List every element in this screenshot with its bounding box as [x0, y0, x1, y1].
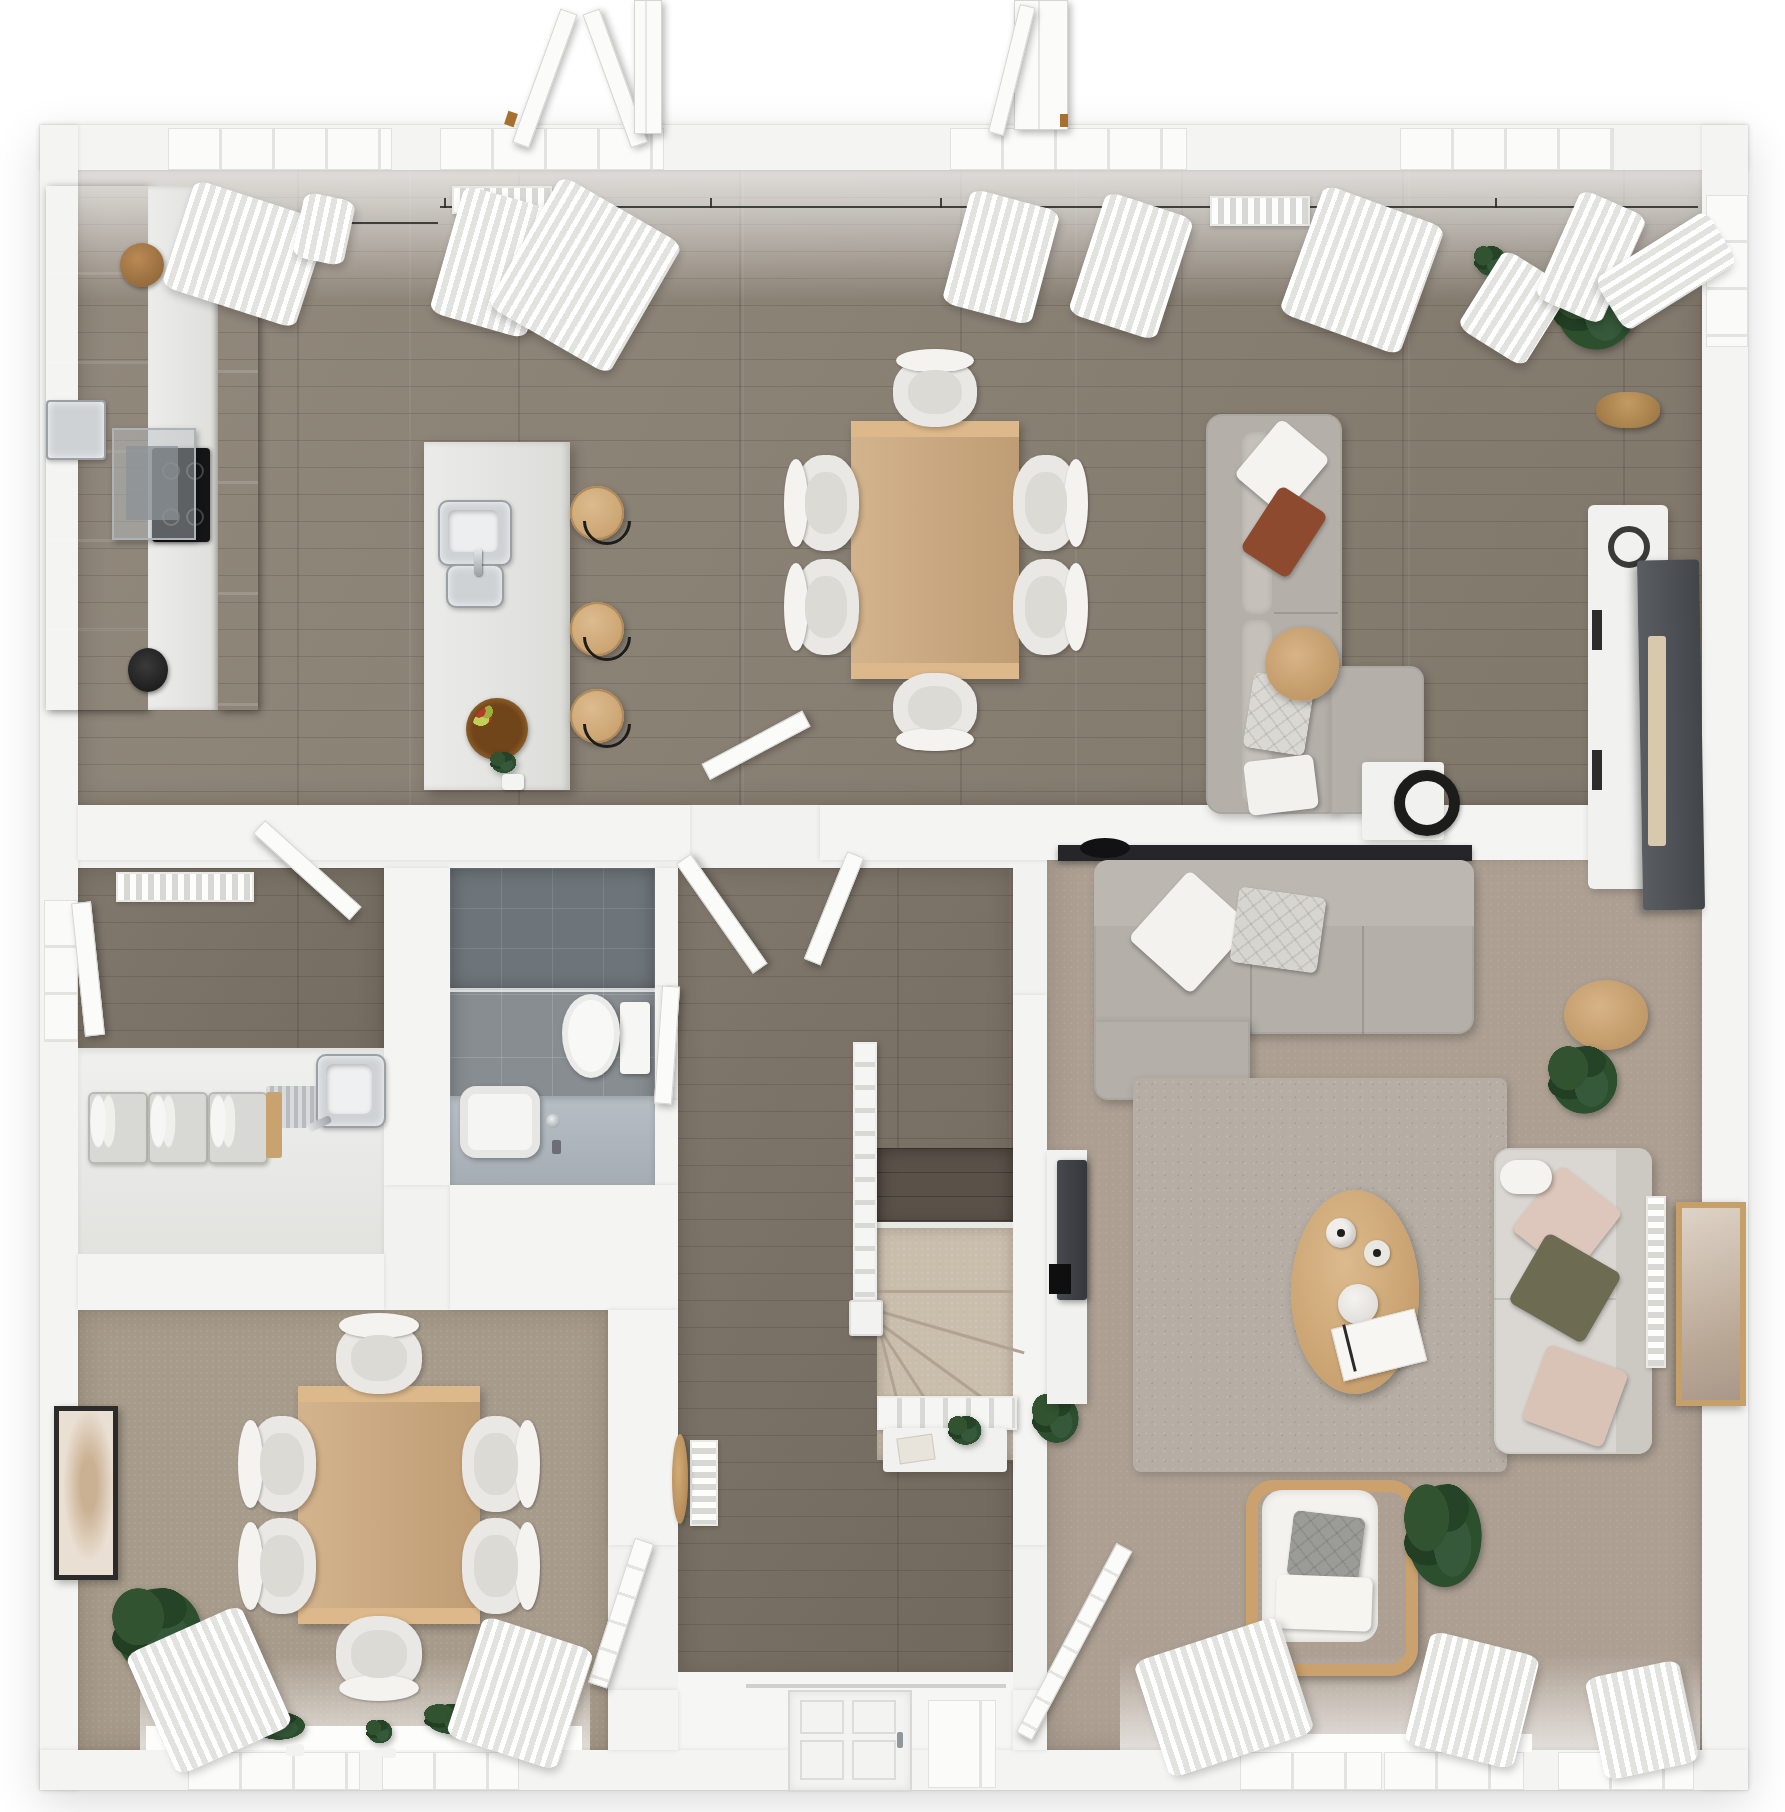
dr-chair-south — [336, 1616, 422, 1692]
shower-glass — [450, 988, 655, 992]
soap-pump — [552, 1140, 561, 1154]
kitchen-base-front — [218, 262, 258, 710]
rail-pin-3 — [940, 198, 942, 208]
curtain-rail-main — [440, 206, 1698, 208]
bar-stool-2 — [570, 602, 624, 656]
armchair-pillow — [1286, 1510, 1366, 1584]
door-panel-4 — [852, 1740, 896, 1780]
dining-chair-north — [893, 357, 977, 427]
dining-room-table — [298, 1386, 480, 1624]
rail-pin-2 — [710, 198, 712, 208]
entry-threshold-line — [746, 1684, 1006, 1688]
wall-dining-hall-upper — [608, 1310, 678, 1545]
towel-basket-1 — [88, 1092, 148, 1164]
living-sofa-seam-2 — [1362, 926, 1364, 1034]
door-panel-2 — [852, 1700, 896, 1734]
step-line-1 — [877, 1290, 1013, 1293]
dr-chair-east-2 — [462, 1518, 530, 1614]
hood-duct — [126, 446, 178, 520]
dining-chair-west-1 — [793, 455, 859, 551]
window-stay-right — [1060, 114, 1068, 127]
family-sofa-seat-seam — [1274, 612, 1338, 614]
island-tap — [474, 548, 482, 576]
dining-chair-east-1 — [1013, 455, 1079, 551]
armchair-lumbar — [1275, 1574, 1373, 1631]
window-top-right — [1400, 128, 1614, 170]
basin-tap — [546, 1114, 560, 1128]
shower-zone — [450, 868, 655, 990]
plant-basket — [1596, 392, 1660, 428]
wall-mid-west — [78, 805, 690, 860]
rail-pin-5 — [1495, 198, 1497, 208]
dining-chair-west-2 — [793, 559, 859, 655]
sill-pot-1 — [286, 1744, 304, 1756]
built-in-oven — [46, 400, 106, 460]
bar-stool-3 — [570, 689, 624, 743]
island-sink-basin — [448, 510, 498, 552]
round-side-table-living — [1564, 980, 1648, 1050]
wall-below-utility — [78, 1254, 384, 1310]
pillow-roll — [1500, 1160, 1552, 1194]
hall-radiator — [690, 1440, 718, 1526]
window-top-kitchen — [168, 128, 392, 170]
vessel-basin — [460, 1086, 540, 1158]
leaning-art-living — [1676, 1202, 1746, 1406]
table-vase-1-mouth — [1337, 1229, 1345, 1237]
bar-stool-1 — [570, 486, 624, 540]
dining-chair-south — [893, 673, 977, 743]
wall-right — [1702, 125, 1748, 1790]
pillow-white-2 — [1243, 754, 1319, 816]
fruit-apples — [472, 704, 522, 754]
toilet-tank — [620, 1002, 650, 1074]
console-vent-2 — [1592, 750, 1602, 790]
towel-basket-2 — [148, 1092, 208, 1164]
console-plant — [948, 1416, 1004, 1468]
dr-chair-east-1 — [462, 1416, 530, 1512]
wall-below-bathroom — [450, 1185, 678, 1310]
sill-pot-2 — [382, 1748, 396, 1758]
window-top-family — [950, 128, 1187, 170]
alocasia-plant — [1548, 1046, 1664, 1168]
leaning-art-dining — [54, 1406, 118, 1580]
tv-mount — [1049, 1264, 1071, 1294]
kettle — [128, 648, 168, 692]
rail-pin-1 — [444, 198, 446, 208]
dining-area-table — [851, 421, 1019, 679]
round-mirror — [672, 1434, 688, 1524]
round-side-table — [1265, 627, 1339, 701]
basket-wood-end — [266, 1092, 282, 1158]
wall-dining-hall-lower — [608, 1690, 678, 1750]
stair-landing — [877, 1148, 1013, 1228]
wall-bathroom-hall-upper — [655, 868, 678, 985]
entry-sidelight — [928, 1700, 996, 1788]
table-vase-2-mouth — [1373, 1249, 1381, 1257]
console-book — [896, 1434, 935, 1465]
table-lamp-black — [1394, 770, 1460, 836]
wall-bathroom-hall-lower — [655, 1100, 678, 1185]
door-panel-3 — [800, 1740, 844, 1780]
casement-frame-left — [634, 0, 662, 134]
console-vent-1 — [1592, 610, 1602, 650]
wood-bowl — [120, 243, 164, 287]
radiator-top-right — [1210, 196, 1310, 226]
utility-sink-basin — [326, 1064, 372, 1114]
balustrade-vertical — [853, 1042, 877, 1318]
wall-utility-bathroom — [384, 868, 450, 1185]
towel-basket-3 — [208, 1092, 268, 1164]
dr-chair-north — [336, 1322, 422, 1394]
living-window-1 — [1240, 1752, 1382, 1790]
living-pillow-quilt — [1229, 886, 1327, 974]
tv-soundbar — [1648, 636, 1666, 846]
door-panel-1 — [800, 1700, 844, 1734]
utility-radiator — [116, 872, 254, 902]
dining-chair-east-2 — [1013, 559, 1079, 655]
floorplan-render — [0, 0, 1785, 1812]
newel-post — [849, 1300, 883, 1336]
dr-chair-west-1 — [248, 1416, 316, 1512]
plant-by-door — [1032, 1394, 1110, 1482]
shelf-bowl — [1080, 838, 1130, 858]
door-handle — [897, 1732, 903, 1748]
herb-pot — [502, 774, 524, 790]
living-radiator — [1646, 1196, 1666, 1368]
